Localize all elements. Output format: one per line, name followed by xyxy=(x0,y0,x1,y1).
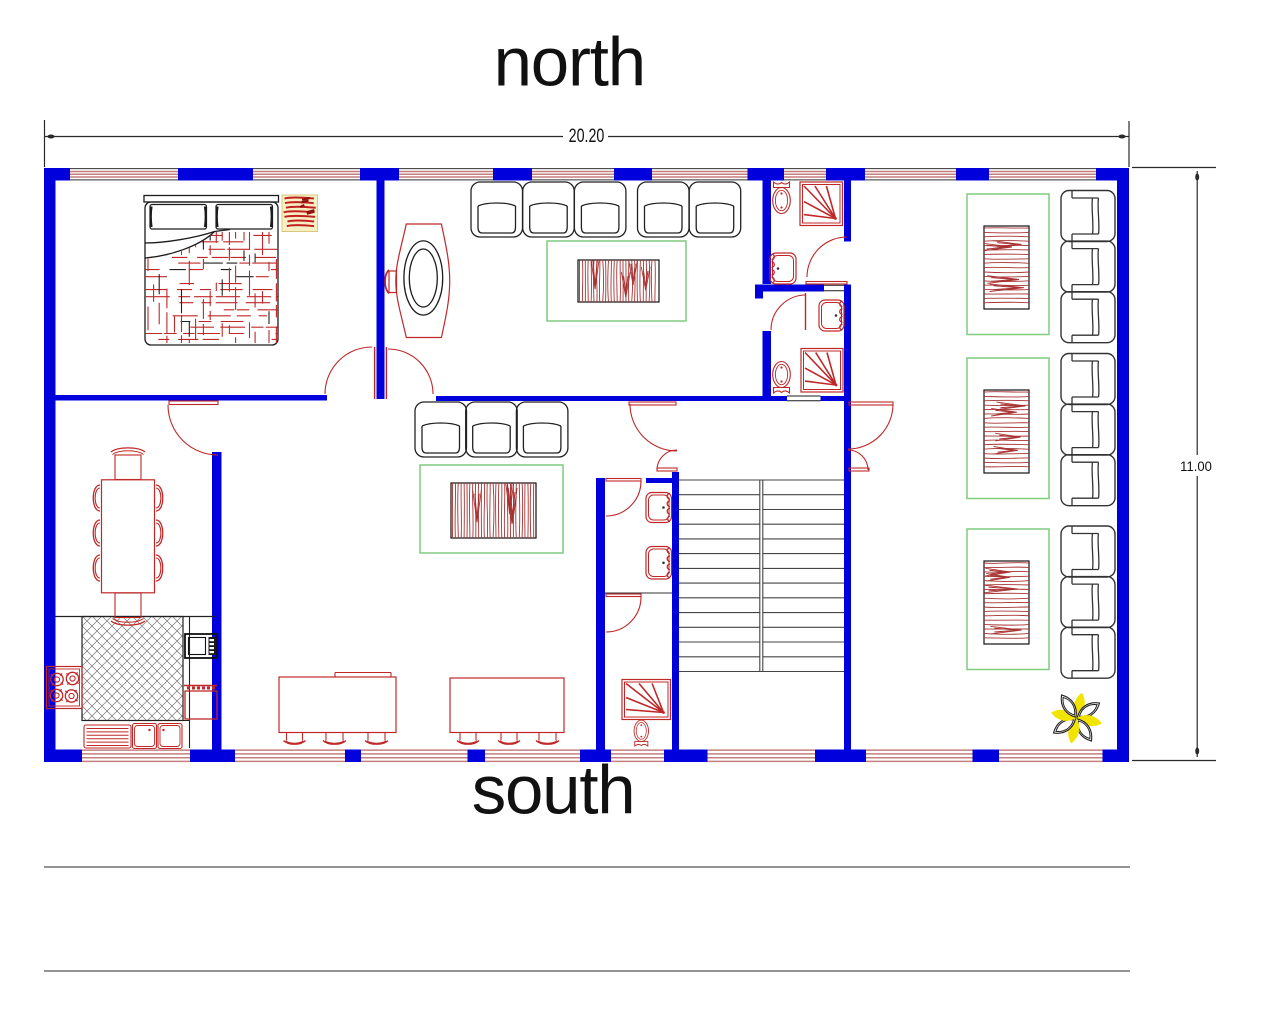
svg-text:north: north xyxy=(494,24,645,101)
svg-text:11.00: 11.00 xyxy=(1180,459,1212,475)
svg-text:20.20: 20.20 xyxy=(569,125,605,146)
svg-text:south: south xyxy=(472,752,635,829)
